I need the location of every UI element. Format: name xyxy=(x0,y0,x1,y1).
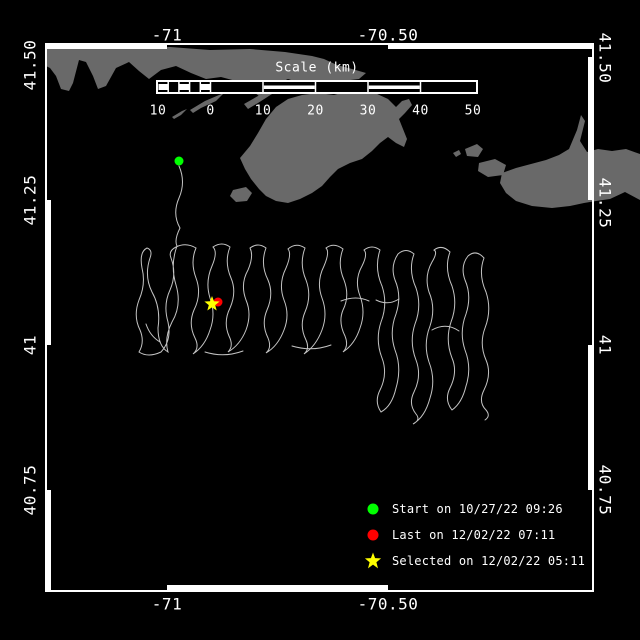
legend-last-label: Last on 12/02/22 07:11 xyxy=(392,528,555,542)
scale-tick-10L: 10 xyxy=(150,104,167,119)
axis-label-left-lat4: 40.75 xyxy=(21,465,40,516)
axis-label-right-lat2: 41.25 xyxy=(596,178,615,229)
tracking-map: -71 -70.50 -71 -70.50 41.50 41.25 41 40.… xyxy=(0,0,640,640)
axis-label-right-lat1: 41.50 xyxy=(596,33,615,84)
scale-tick-40: 40 xyxy=(412,104,429,119)
small-island-south xyxy=(230,187,252,202)
axis-label-left-lat1: 41.50 xyxy=(21,40,40,91)
axis-label-left-lat3: 41 xyxy=(21,335,40,355)
legend-start-label: Start on 10/27/22 09:26 xyxy=(392,502,563,516)
small-islet xyxy=(453,150,461,157)
track-layer xyxy=(136,166,489,424)
small-island-east-1 xyxy=(465,144,483,157)
track-path xyxy=(136,166,489,424)
legend-selected-star-icon xyxy=(365,553,381,569)
scale-bar-title: Scale (km) xyxy=(275,61,358,76)
scale-tick-20: 20 xyxy=(307,104,324,119)
scale-tick-0: 0 xyxy=(206,104,214,119)
axis-label-right-lat4: 40.75 xyxy=(596,465,615,516)
scale-bar-subcells xyxy=(159,84,211,90)
scale-tick-30: 30 xyxy=(360,104,377,119)
axis-label-top-lon1: -71 xyxy=(152,26,182,45)
axis-label-right-lat3: 41 xyxy=(596,335,615,355)
axis-label-left-lat2: 41.25 xyxy=(21,175,40,226)
legend-last-icon xyxy=(368,530,379,541)
scale-bar xyxy=(157,81,477,93)
legend-selected-label: Selected on 12/02/22 05:11 xyxy=(392,554,585,568)
axis-label-top-lon2: -70.50 xyxy=(358,26,419,45)
island-chain-3 xyxy=(172,109,187,119)
map-canvas xyxy=(0,0,640,640)
nantucket-island xyxy=(500,115,640,208)
axis-label-bottom-lon1: -71 xyxy=(152,595,182,614)
axis-label-bottom-lon2: -70.50 xyxy=(358,595,419,614)
scale-tick-50: 50 xyxy=(465,104,482,119)
start-marker-dot xyxy=(175,157,184,166)
legend-start-icon xyxy=(368,504,379,515)
scale-tick-10R: 10 xyxy=(255,104,272,119)
